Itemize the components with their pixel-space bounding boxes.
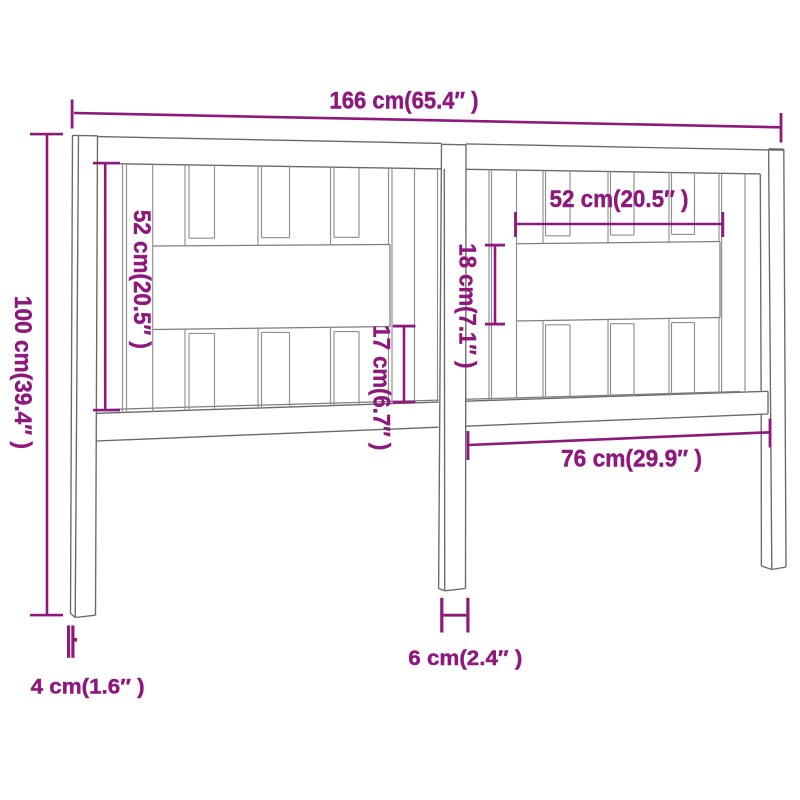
- svg-text:18 cm(7.1″ ): 18 cm(7.1″ ): [454, 243, 481, 368]
- svg-text:76 cm(29.9″ ): 76 cm(29.9″ ): [561, 446, 702, 473]
- svg-text:166 cm(65.4″ ): 166 cm(65.4″ ): [330, 88, 479, 115]
- svg-text:100 cm(39.4″ ): 100 cm(39.4″ ): [9, 296, 36, 449]
- svg-text:6 cm(2.4″ ): 6 cm(2.4″ ): [408, 646, 522, 670]
- svg-text:17 cm(6.7″ ): 17 cm(6.7″ ): [367, 325, 394, 450]
- svg-text:52 cm(20.5″ ): 52 cm(20.5″ ): [550, 186, 689, 213]
- svg-text:4 cm(1.6″ ): 4 cm(1.6″ ): [31, 674, 145, 698]
- svg-text:52 cm(20.5″ ): 52 cm(20.5″ ): [128, 210, 155, 349]
